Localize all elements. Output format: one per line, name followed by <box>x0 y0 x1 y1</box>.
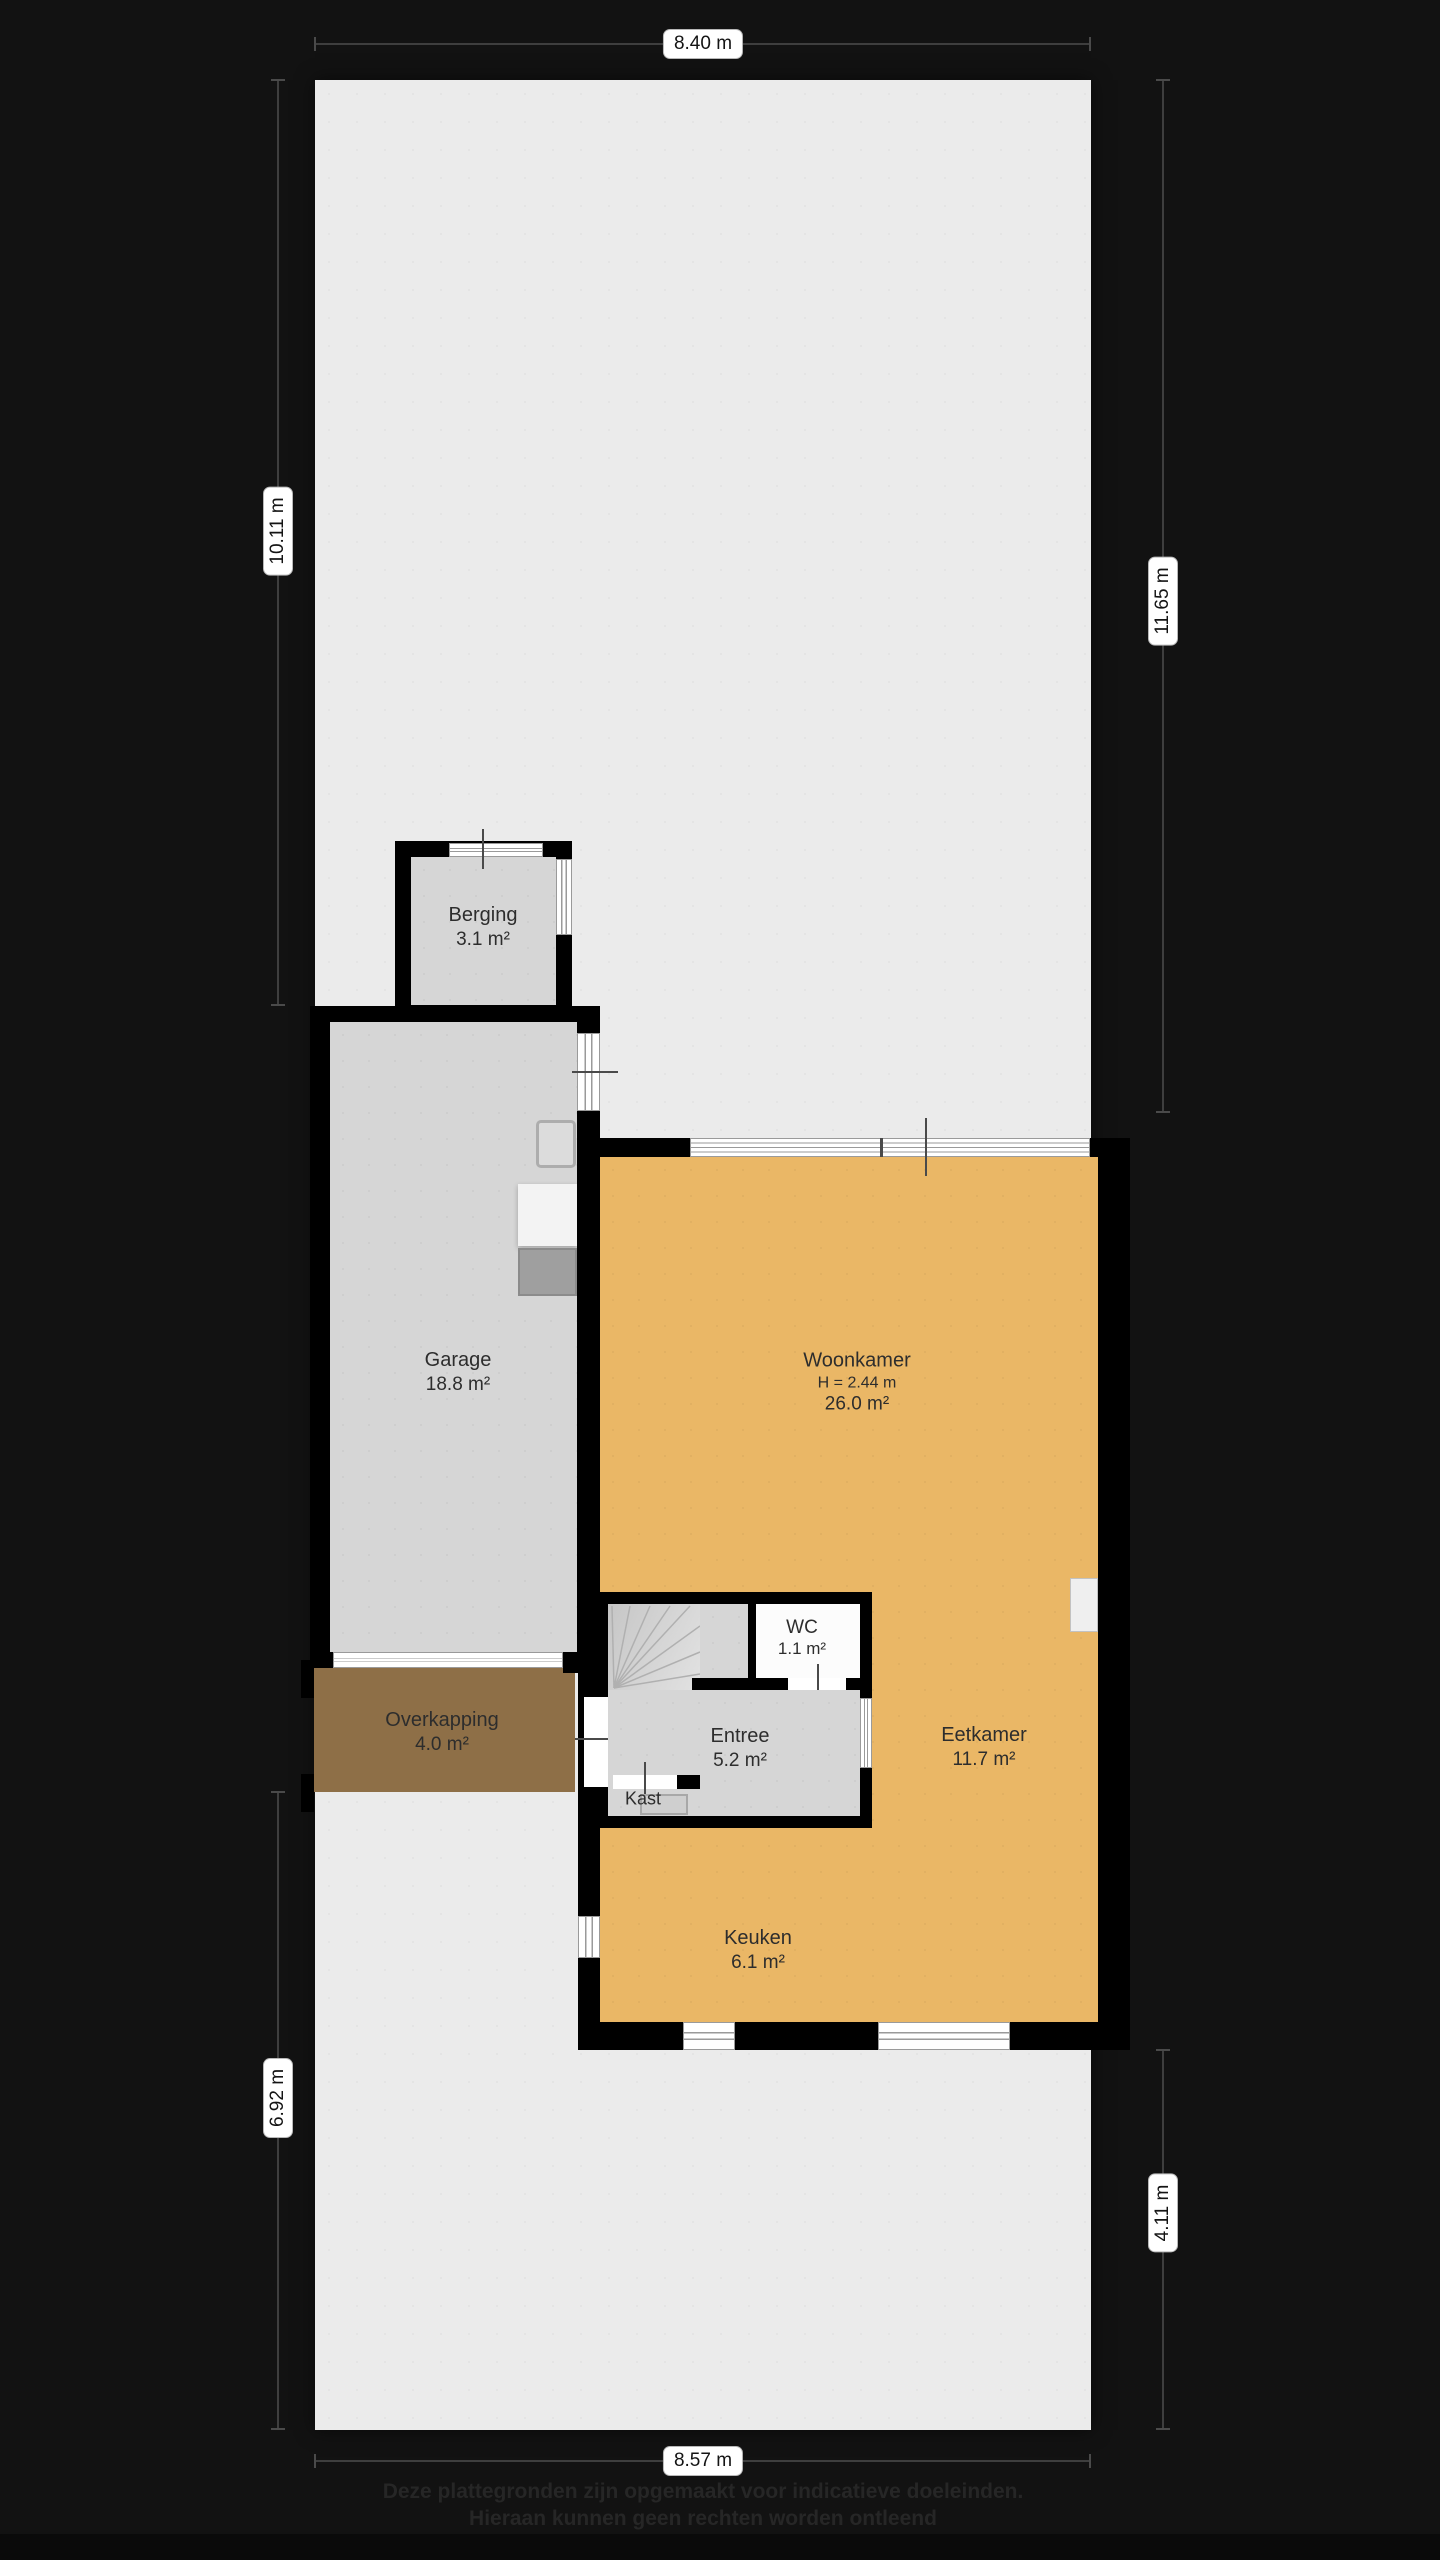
dim-label-right-upper: 11.65 m <box>1148 556 1178 645</box>
room-height: H = 2.44 m <box>803 1374 910 1393</box>
room-name: Overkapping <box>385 1708 498 1733</box>
dim-label-top: 8.40 m <box>663 29 743 59</box>
bottom-edge-strip <box>0 2534 1440 2560</box>
staircase <box>608 1604 700 1690</box>
room-name: Kast <box>625 1787 661 1812</box>
window-eetkamer-south <box>878 2022 1010 2050</box>
footer-line2: Hieraan kunnen geen rechten worden ontle… <box>253 2505 1153 2532</box>
label-eetkamer: Eetkamer 11.7 m² <box>941 1723 1027 1771</box>
room-area: 4.0 m² <box>385 1733 498 1756</box>
radiator <box>1070 1578 1098 1632</box>
carport-post-sw <box>301 1774 314 1812</box>
front-door <box>584 1697 608 1787</box>
window-marker <box>572 1071 618 1073</box>
room-area: 1.1 m² <box>778 1639 826 1659</box>
garage-counter-gray <box>518 1248 577 1296</box>
room-area: 26.0 m² <box>803 1393 910 1416</box>
dimension-tick <box>1089 2454 1091 2468</box>
dim-label-right-lower: 4.11 m <box>1148 2174 1178 2253</box>
room-living-floor <box>600 1157 1098 2022</box>
room-area: 11.7 m² <box>941 1748 1027 1771</box>
dimension-tick <box>271 2428 285 2430</box>
floorplan-canvas: Berging 3.1 m² Garage 18.8 m² Woonkamer … <box>0 0 1440 2560</box>
dimension-tick <box>314 2454 316 2468</box>
label-overkapping: Overkapping 4.0 m² <box>385 1708 498 1756</box>
stair-landing-floor <box>700 1604 748 1678</box>
label-keuken: Keuken 6.1 m² <box>724 1926 792 1974</box>
dimension-tick <box>314 37 316 51</box>
garage-door <box>333 1652 563 1668</box>
staircase-treads <box>608 1604 700 1690</box>
footer-line1: Deze plattegronden zijn opgemaakt voor i… <box>253 2478 1153 2505</box>
label-kast: Kast <box>625 1787 661 1812</box>
dimension-tick <box>1156 79 1170 81</box>
carport-post-nw <box>301 1660 314 1698</box>
dimension-tick <box>1156 1111 1170 1113</box>
room-name: Garage <box>425 1348 492 1373</box>
dimension-tick <box>1156 2428 1170 2430</box>
appliance-washer <box>536 1120 576 1168</box>
room-name: Woonkamer <box>803 1349 910 1374</box>
room-area: 6.1 m² <box>724 1951 792 1974</box>
dimension-tick <box>1156 2049 1170 2051</box>
window-divider <box>880 1138 883 1157</box>
carport-wall-ne <box>563 1660 602 1673</box>
room-name: Berging <box>449 903 518 928</box>
window-berging-north <box>449 843 543 857</box>
window-woonkamer-north <box>690 1138 1090 1157</box>
wall-kast <box>677 1775 700 1789</box>
dimension-tick <box>271 1004 285 1006</box>
label-entree: Entree 5.2 m² <box>711 1724 770 1772</box>
dim-label-left-lower: 6.92 m <box>263 2058 293 2138</box>
room-area: 5.2 m² <box>711 1749 770 1772</box>
window-keuken-west <box>578 1916 600 1958</box>
room-garage-floor <box>330 1022 577 1652</box>
dim-label-left-upper: 10.11 m <box>263 486 293 575</box>
room-name: Keuken <box>724 1926 792 1951</box>
room-name: Entree <box>711 1724 770 1749</box>
wall-wc-west <box>748 1604 756 1678</box>
footer-disclaimer: Deze plattegronden zijn opgemaakt voor i… <box>253 2478 1153 2532</box>
wall-below-wc-right <box>846 1678 860 1690</box>
room-area: 3.1 m² <box>449 928 518 951</box>
room-name: Eetkamer <box>941 1723 1027 1748</box>
window-entree-east <box>860 1698 872 1768</box>
label-berging: Berging 3.1 m² <box>449 903 518 951</box>
label-wc: WC 1.1 m² <box>778 1617 826 1659</box>
room-name: WC <box>778 1617 826 1639</box>
window-keuken-south <box>683 2022 735 2050</box>
dimension-tick <box>271 79 285 81</box>
garage-counter-white <box>518 1184 577 1246</box>
dimension-tick <box>1089 37 1091 51</box>
dimension-tick <box>271 1791 285 1793</box>
wall-below-wc <box>692 1678 788 1690</box>
window-marker <box>925 1118 927 1176</box>
label-garage: Garage 18.8 m² <box>425 1348 492 1396</box>
dim-label-bottom: 8.57 m <box>663 2446 743 2476</box>
room-area: 18.8 m² <box>425 1373 492 1396</box>
window-marker <box>482 829 484 869</box>
label-woonkamer: Woonkamer H = 2.44 m 26.0 m² <box>803 1349 910 1416</box>
window-berging-east <box>556 859 572 935</box>
